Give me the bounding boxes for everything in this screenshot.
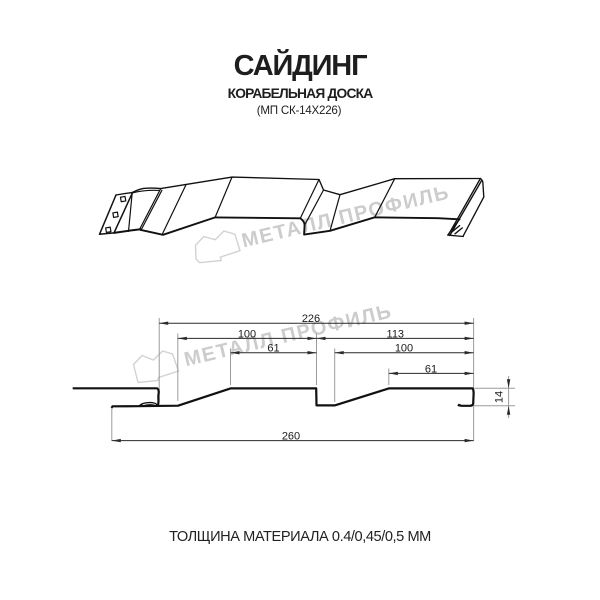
svg-text:100: 100 — [238, 328, 256, 340]
svg-text:226: 226 — [302, 313, 320, 325]
svg-text:113: 113 — [387, 328, 405, 340]
svg-text:61: 61 — [267, 343, 279, 355]
svg-text:260: 260 — [282, 430, 300, 442]
svg-text:100: 100 — [395, 343, 413, 355]
svg-text:(МП СК-14Х226): (МП СК-14Х226) — [257, 104, 342, 117]
svg-text:КОРАБЕЛЬНАЯ ДОСКА: КОРАБЕЛЬНАЯ ДОСКА — [228, 86, 374, 101]
svg-text:61: 61 — [425, 363, 437, 375]
svg-text:14: 14 — [494, 391, 506, 403]
svg-text:ТОЛЩИНА МАТЕРИАЛА 0.4/0,45/0,5: ТОЛЩИНА МАТЕРИАЛА 0.4/0,45/0,5 ММ — [169, 529, 431, 545]
svg-text:САЙДИНГ: САЙДИНГ — [234, 48, 367, 82]
